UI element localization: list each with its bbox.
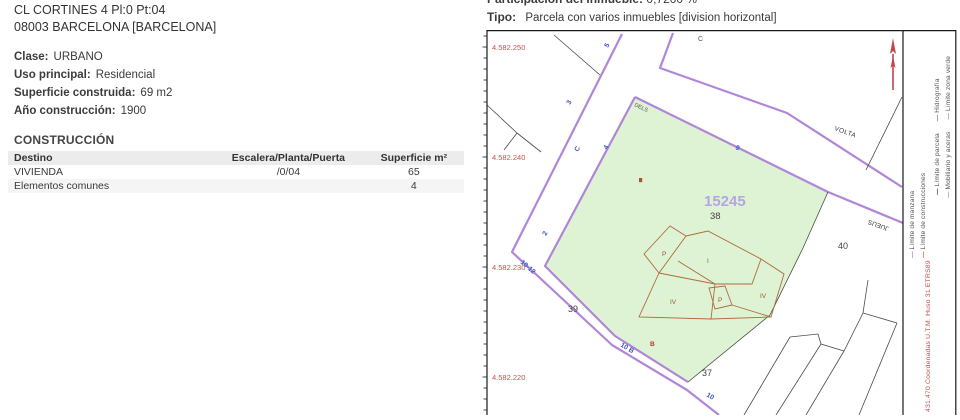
cell-superficie: 4	[364, 179, 464, 193]
legend-dash-construcciones: —	[920, 252, 927, 259]
block-38-label: 38	[710, 211, 721, 222]
map-legend: — Límite de parcela — Hidrografía — Mobi…	[904, 30, 957, 415]
utm-projection-note: 431.470 Coordenadas U.T.M. Huso 31 ETRS8…	[925, 260, 932, 412]
col-destino: Destino	[8, 151, 213, 165]
field-anio-value: 1900	[121, 105, 147, 117]
parcel-info-header: Participación del inmueble: 0,7200 % Tip…	[487, 0, 957, 24]
legend-dash-manzana: —	[909, 252, 916, 259]
legend-label-parcela: Límite de parcela	[934, 133, 941, 186]
utm-coordinate-labels: 4.582.250 4.582.240 4.582.230 4.582.220	[492, 43, 525, 382]
field-anio: Año construcción:1900	[14, 102, 474, 120]
participation-label: Participación del inmueble:	[487, 0, 643, 6]
type-line: Tipo: Parcela con varios inmuebles [divi…	[487, 10, 957, 24]
street-volta-label: VOLTA	[833, 125, 857, 139]
legend-line-parcela-hidrografia: — Límite de parcela — Hidrografía	[934, 78, 941, 195]
field-clase-value: URBANO	[54, 51, 103, 63]
field-uso: Uso principal:Residencial	[14, 66, 474, 84]
legend-line-construcciones: — Límite de construcciones	[920, 173, 927, 258]
field-superficie: Superficie construida:69 m2	[14, 84, 474, 102]
table-row: Elementos comunes 4	[8, 179, 464, 193]
col-superficie: Superficie m²	[364, 151, 464, 165]
parcel-15245-shape[interactable]	[545, 97, 828, 382]
street-jueus-label: JUEUS	[867, 218, 890, 232]
street-c-label: C	[698, 36, 703, 43]
legend-label-construcciones: Límite de construcciones	[920, 173, 927, 250]
legend-line-mobiliario-zonaverde: — Mobiliario y aceras — Límite zona verd…	[945, 56, 952, 198]
street-number: 5	[604, 42, 612, 49]
field-superficie-value: 69 m2	[140, 87, 172, 99]
utm-y-label: 4.582.240	[492, 153, 525, 162]
block-37-label: 37	[702, 368, 712, 378]
construction-section-title: CONSTRUCCIÓN	[14, 133, 474, 147]
construction-table: Destino Escalera/Planta/Puerta Superfici…	[8, 151, 464, 193]
type-label: Tipo:	[487, 10, 516, 24]
cell-destino: Elementos comunes	[8, 179, 213, 193]
legend-label-manzana: Límite de manzana	[909, 191, 916, 250]
legend-label-mobiliario: Mobiliario y aceras	[945, 131, 952, 189]
utm-y-label: 4.582.220	[492, 373, 525, 382]
utm-y-label: 4.582.230	[492, 263, 525, 272]
legend-line-manzana: — Límite de manzana	[909, 191, 916, 258]
field-uso-label: Uso principal:	[14, 69, 91, 81]
participation-line: Participación del inmueble: 0,7200 %	[487, 0, 957, 6]
room-label: IV	[670, 299, 677, 306]
room-label: I	[707, 258, 709, 265]
legend-dash-zonaverde: —	[945, 113, 952, 120]
cadastral-map[interactable]: P I IV P IV B 15245 38 39 40 37 C DELS V…	[482, 30, 958, 415]
street-number: 2	[542, 230, 550, 237]
legend-dash-hidrografia: —	[934, 115, 941, 122]
col-escalera: Escalera/Planta/Puerta	[213, 151, 363, 165]
cadastral-map-svg: P I IV P IV B 15245 38 39 40 37 C DELS V…	[482, 30, 958, 415]
room-label: P	[662, 251, 666, 258]
axis-ticks	[483, 36, 488, 410]
legend-label-hidrografia: Hidrografía	[934, 78, 941, 112]
parcel-number-label: 15245	[704, 193, 746, 210]
construction-table-header: Destino Escalera/Planta/Puerta Superfici…	[8, 151, 464, 165]
room-label-b: B	[650, 341, 655, 348]
field-clase: Clase:URBANO	[14, 48, 474, 66]
north-arrow-icon	[890, 38, 896, 90]
room-label: P	[718, 297, 722, 304]
property-fields: Clase:URBANO Uso principal:Residencial S…	[14, 48, 474, 120]
legend-dash-mobiliario: —	[945, 192, 952, 199]
street-number: 10	[705, 392, 715, 402]
block-40-label: 40	[838, 241, 848, 251]
field-superficie-label: Superficie construida:	[14, 87, 135, 99]
utm-y-label: 4.582.250	[492, 43, 525, 52]
legend-label-zonaverde: Límite zona verde	[945, 56, 952, 111]
room-label: IV	[760, 293, 767, 300]
type-value: Parcela con varios inmuebles [division h…	[525, 12, 776, 24]
legend-dash-parcela: —	[934, 189, 941, 196]
field-anio-label: Año construcción:	[14, 105, 116, 117]
block-39-label: 39	[568, 304, 578, 314]
cell-superficie: 65	[364, 165, 464, 179]
cell-escalera	[213, 179, 363, 193]
field-clase-label: Clase:	[14, 51, 49, 63]
cell-escalera: /0/04	[213, 165, 363, 179]
field-uso-value: Residencial	[96, 69, 155, 81]
property-record-panel: CL CORTINES 4 Pl:0 Pt:04 08003 BARCELONA…	[14, 2, 474, 193]
street-number: C	[574, 145, 583, 153]
property-address-line2: 08003 BARCELONA [BARCELONA]	[14, 19, 474, 36]
construction-mark	[639, 178, 642, 182]
property-address-line1: CL CORTINES 4 Pl:0 Pt:04	[14, 2, 474, 19]
street-number: 3	[566, 99, 574, 106]
participation-value: 0,7200 %	[646, 0, 697, 6]
cell-destino: VIVIENDA	[8, 165, 213, 179]
table-row: VIVIENDA /0/04 65	[8, 165, 464, 179]
